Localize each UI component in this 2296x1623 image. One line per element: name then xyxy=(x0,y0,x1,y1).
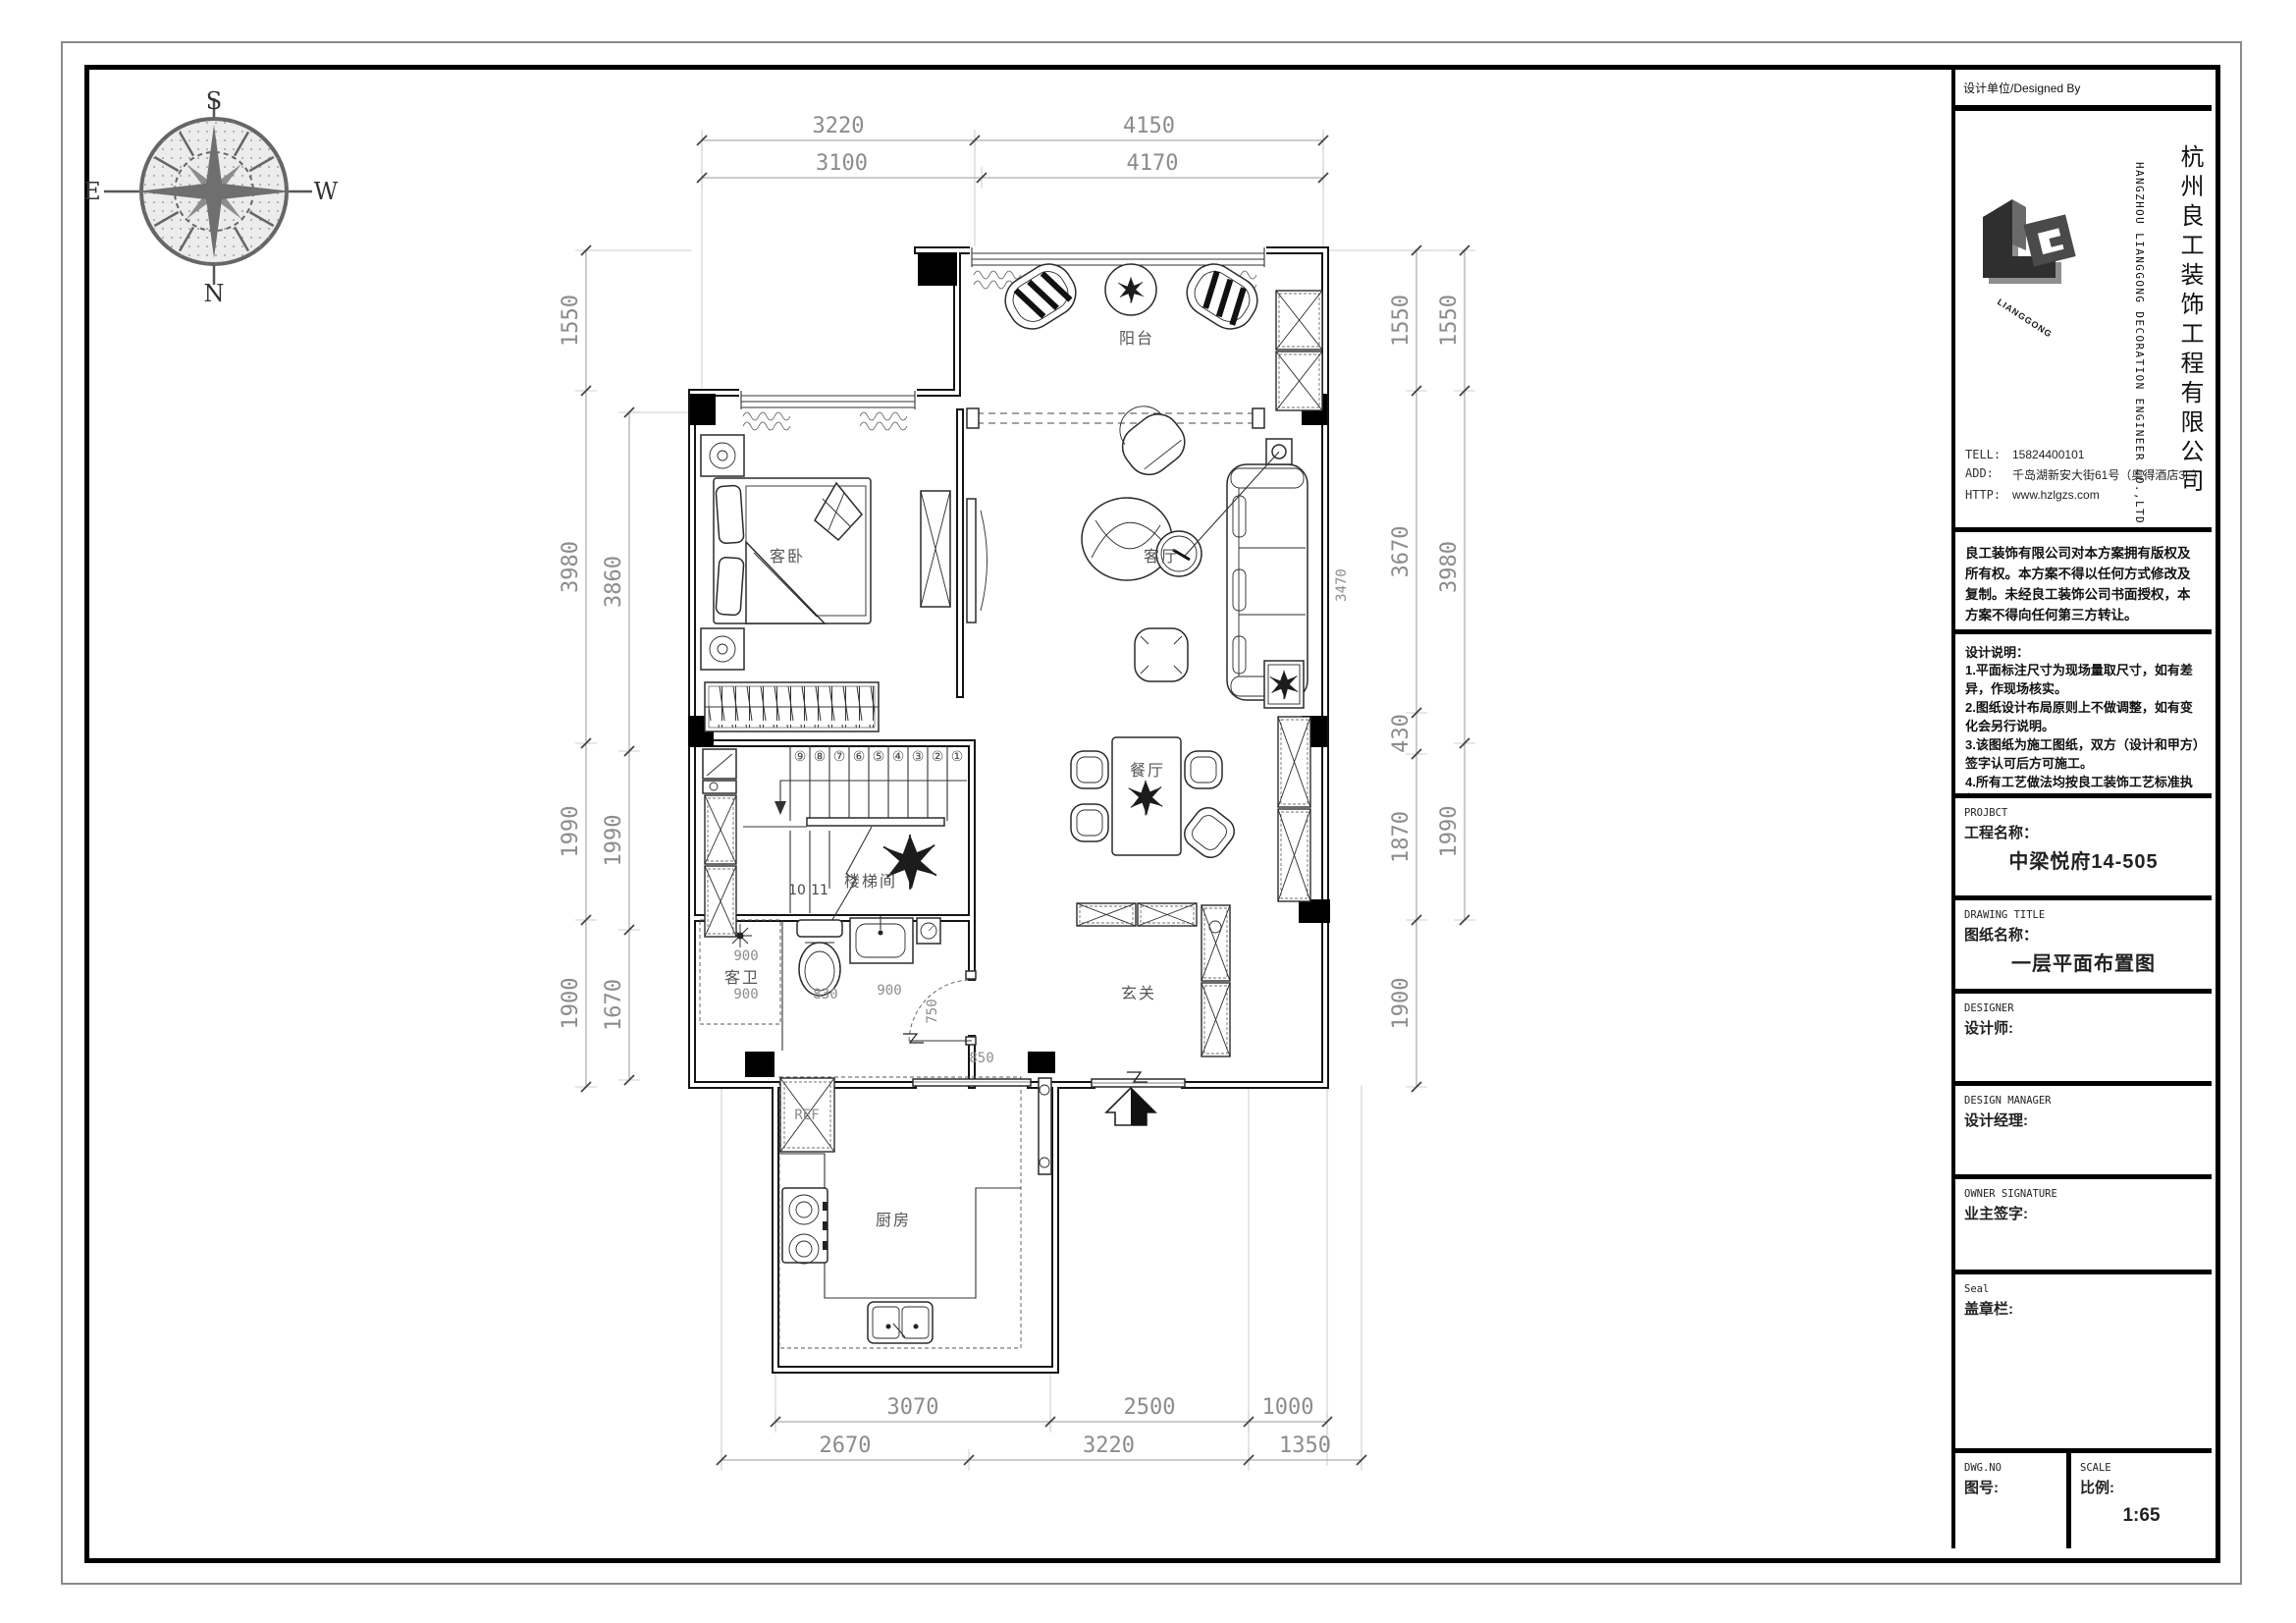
dimension-label: 1870 xyxy=(1389,811,1414,863)
kitchen-fixtures xyxy=(779,1077,1051,1348)
stair-step-number: ② xyxy=(932,749,944,765)
balcony-furniture xyxy=(967,255,1266,428)
entry-door xyxy=(1092,1072,1185,1087)
room-label: 餐厅 xyxy=(1130,762,1165,780)
compass-east-label: E xyxy=(83,178,101,205)
wardrobe xyxy=(705,682,879,731)
stair-step-number: ③ xyxy=(912,749,925,765)
drawing-title-label-cn: 图纸名称： xyxy=(1955,921,2212,945)
dimension-label: 1900 xyxy=(559,978,583,1030)
detail-dimension-label: 900 xyxy=(877,983,901,999)
design-manager-label-cn: 设计经理: xyxy=(1955,1107,2212,1130)
scale-cell: SCALE 比例: 1:65 xyxy=(2071,1453,2212,1548)
design-manager-section: DESIGN MANAGER 设计经理: xyxy=(1955,1086,2212,1179)
room-label: 厨房 xyxy=(876,1212,911,1229)
dining-chair xyxy=(1071,804,1108,841)
windows xyxy=(739,246,1266,430)
owner-signature-section: OWNER SIGNATURE 业主签字: xyxy=(1955,1179,2212,1273)
design-note-item: 1.平面标注尺寸为现场量取尺寸，如有差异，作现场核实。 xyxy=(1965,662,2202,699)
seal-section: Seal 盖章栏: xyxy=(1955,1274,2212,1453)
http-value: www.hzlgzs.com xyxy=(2012,488,2100,502)
kitchen-sliding-door xyxy=(913,1079,1031,1086)
dimension-label: 1550 xyxy=(1389,295,1414,347)
living-room-furniture xyxy=(967,393,1308,708)
company-contacts: TELL: 15824400101 ADD: 千岛湖新安大街61号（奥得酒店3F… xyxy=(1965,443,2204,502)
entrance-arrow-icon xyxy=(1106,1088,1155,1125)
stair-step-number: ⑧ xyxy=(814,749,827,765)
dwg-no-label-cn: 图号: xyxy=(1955,1474,2066,1497)
stair-step-number: ⑨ xyxy=(794,749,807,765)
project-section: PROJBCT 工程名称： 中梁悦府14-505 xyxy=(1955,798,2212,900)
entry-area xyxy=(1092,1072,1185,1125)
designer-label-cn: 设计师: xyxy=(1955,1014,2212,1038)
dimension-label: 3070 xyxy=(887,1395,939,1420)
room-label: 客卫 xyxy=(724,969,760,987)
designed-by-header: 设计单位/Designed By xyxy=(1955,70,2212,111)
owner-signature-label-cn: 业主签字: xyxy=(1955,1200,2212,1223)
stair-handrail xyxy=(807,818,944,826)
owner-signature-label-en: OWNER SIGNATURE xyxy=(1955,1179,2212,1200)
ottoman xyxy=(1135,628,1188,681)
sheet-footer: DWG.NO 图号: SCALE 比例: 1:65 xyxy=(1955,1453,2212,1548)
detail-dimension-label: 3470 xyxy=(1334,568,1350,602)
dimension-label: 3980 xyxy=(1437,541,1462,593)
room-label: 玄关 xyxy=(1121,985,1156,1002)
compass-west-label: W xyxy=(314,178,339,205)
company-section: LIANGGONG HANGZHOU LIANGGONG DECORATION … xyxy=(1955,111,2212,532)
add-label: ADD: xyxy=(1965,466,2012,483)
design-manager-label-en: DESIGN MANAGER xyxy=(1955,1086,2212,1107)
room-label: 楼梯间 xyxy=(844,873,897,891)
room-label: 客厅 xyxy=(1144,548,1179,566)
dimension-label: 2500 xyxy=(1124,1395,1176,1420)
dimension-label: 3980 xyxy=(559,541,583,593)
bedroom-furniture xyxy=(701,435,950,731)
detail-dimension-label: 900 xyxy=(733,987,758,1002)
coffee-table xyxy=(1082,498,1172,580)
kitchen-sink xyxy=(868,1302,933,1343)
compass-rose: S N E W xyxy=(83,87,338,307)
add-value: 千岛湖新安大街61号（奥得酒店3F） xyxy=(2012,466,2204,483)
dining-furniture xyxy=(1071,737,1240,863)
dimension-label: 1550 xyxy=(1437,295,1462,347)
dimension-label: 4170 xyxy=(1127,151,1179,176)
dimension-label: 3100 xyxy=(816,151,868,176)
scale-label-cn: 比例: xyxy=(2071,1474,2212,1497)
detail-dimension-label: 850 xyxy=(969,1051,993,1066)
tel-value: 15824400101 xyxy=(2012,448,2084,461)
detail-dimension-label: REF xyxy=(794,1108,819,1123)
designed-by-label: 设计单位/Designed By xyxy=(1963,81,2080,95)
dimension-label: 1000 xyxy=(1262,1395,1314,1420)
designer-section: DESIGNER 设计师: xyxy=(1955,994,2212,1086)
detail-dimension-label: 830 xyxy=(813,987,837,1002)
room-label: 阳台 xyxy=(1119,330,1154,348)
compass-south-label: S xyxy=(206,87,222,115)
dimension-label: 3220 xyxy=(1083,1434,1135,1458)
dining-chair xyxy=(1071,751,1108,788)
scale-value: 1:65 xyxy=(2071,1505,2212,1527)
compass-north-label: N xyxy=(204,280,225,307)
tel-label: TELL: xyxy=(1965,448,2012,461)
detail-dimension-label: 900 xyxy=(733,948,758,964)
drawing-title-value: 一层平面布置图 xyxy=(1955,947,2212,976)
design-notes-title: 设计说明： xyxy=(1965,644,2202,663)
http-label: HTTP: xyxy=(1965,488,2012,502)
dimension-label: 3670 xyxy=(1389,526,1414,578)
dimension-label: 1900 xyxy=(1389,978,1414,1030)
scale-label-en: SCALE xyxy=(2071,1453,2212,1474)
seal-label-en: Seal xyxy=(1955,1274,2212,1295)
dimension-label: 1350 xyxy=(1279,1434,1331,1458)
stair-step-number: ⑦ xyxy=(833,749,846,765)
stair-step-number: ⑥ xyxy=(853,749,866,765)
seal-label-cn: 盖章栏: xyxy=(1955,1295,2212,1319)
dimension-label: 1990 xyxy=(559,806,583,858)
project-name-value: 中梁悦府14-505 xyxy=(1955,845,2212,874)
dimension-label: 2670 xyxy=(820,1434,872,1458)
stair-down-arrow xyxy=(774,801,786,815)
room-label: 客卧 xyxy=(770,548,805,566)
floor-plant xyxy=(1264,661,1304,708)
drawing-title-label-en: DRAWING TITLE xyxy=(1955,900,2212,921)
armchair xyxy=(1104,393,1194,483)
logo-wordmark: LIANGGONG xyxy=(1996,297,2055,337)
dwg-no-label-en: DWG.NO xyxy=(1955,1453,2066,1474)
stair-step-number: ⑤ xyxy=(873,749,885,765)
dimension-label: 4150 xyxy=(1123,114,1175,138)
vanity-sink xyxy=(850,916,913,963)
design-note-item: 4.所有工艺做法均按良工装饰工艺标准执行 xyxy=(1965,774,2202,798)
floor-plan-drawing: S N E W xyxy=(0,0,1949,1623)
stair-step-number: ④ xyxy=(892,749,905,765)
project-label-en: PROJBCT xyxy=(1955,798,2212,819)
water-heater xyxy=(917,918,940,944)
staircase xyxy=(703,745,967,923)
title-block: 设计单位/Designed By LIANGGONG HANGZHOU LIAN… xyxy=(1951,70,2212,1548)
dwg-no-cell: DWG.NO 图号: xyxy=(1955,1453,2071,1548)
stair-step-number: 10 xyxy=(788,883,806,898)
stove xyxy=(782,1188,828,1264)
detail-dimension-label: 750 xyxy=(925,999,940,1023)
dining-chair xyxy=(1185,751,1222,788)
dining-chair xyxy=(1179,802,1240,863)
stair-step-number: 11 xyxy=(811,883,828,898)
designer-label-en: DESIGNER xyxy=(1955,994,2212,1014)
toilet xyxy=(797,920,842,996)
dimension-label: 1550 xyxy=(559,295,583,347)
dimension-label: 1990 xyxy=(1437,806,1462,858)
stair-step-number: ① xyxy=(951,749,964,765)
design-note-item: 2.图纸设计布局原则上不做调整，如有变化会另行说明。 xyxy=(1965,699,2202,736)
radiator xyxy=(1039,1078,1051,1174)
nightstand xyxy=(701,628,744,670)
dimension-label: 1990 xyxy=(602,815,626,867)
dimension-label: 3860 xyxy=(602,556,626,608)
nightstand xyxy=(701,435,744,476)
design-notes: 设计说明： 1.平面标注尺寸为现场量取尺寸，如有差异，作现场核实。 2.图纸设计… xyxy=(1955,634,2212,798)
dimension-label: 1670 xyxy=(602,979,626,1031)
design-note-item: 3.该图纸为施工图纸，双方（设计和甲方）签字认可后方可施工。 xyxy=(1965,736,2202,774)
company-logo: LIANGGONG xyxy=(1973,189,2091,337)
copyright-notice: 良工装饰有限公司对本方案拥有版权及所有权。本方案不得以任何方式修改及复制。未经良… xyxy=(1955,532,2212,634)
dimension-label: 3220 xyxy=(813,114,865,138)
drawing-title-section: DRAWING TITLE 图纸名称： 一层平面布置图 xyxy=(1955,900,2212,993)
dimension-label: 430 xyxy=(1389,714,1414,753)
project-label-cn: 工程名称： xyxy=(1955,819,2212,842)
stair-closet xyxy=(703,749,736,793)
tv xyxy=(967,499,976,622)
